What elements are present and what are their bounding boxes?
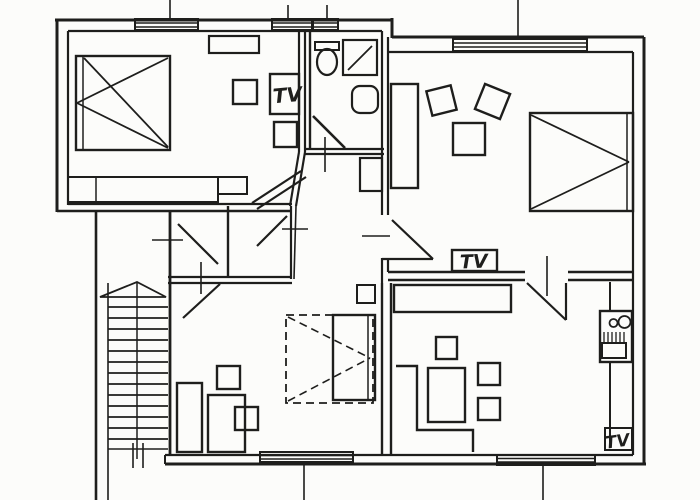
chair: [478, 398, 500, 420]
side-table: [453, 123, 485, 155]
foldout-bed-dash-line: [288, 358, 370, 401]
door-bedroom-leaf: [392, 220, 433, 259]
foldout-bed-dash-line: [288, 317, 370, 358]
bed-double: [76, 56, 170, 150]
sofa-bench: [68, 177, 218, 202]
chair: [436, 337, 457, 359]
tv-label-bedroom: TV: [460, 250, 490, 273]
stair-direction-arrow: [100, 282, 166, 297]
chair-tilted: [475, 84, 510, 119]
side-table: [217, 366, 240, 389]
tv-label-kitchen: TV: [604, 430, 633, 454]
floor-plan-page: TVTVTV: [0, 0, 700, 500]
chair: [478, 363, 500, 385]
wardrobe: [391, 84, 418, 188]
shower-diagonal: [348, 46, 372, 70]
chair-tilted: [426, 85, 456, 115]
bed-fold-line: [77, 103, 168, 148]
hall-cabinet: [360, 158, 382, 191]
wall-shelf: [209, 36, 259, 53]
bed-double: [530, 113, 633, 211]
desk: [208, 395, 245, 452]
bed-fold-line: [531, 115, 629, 162]
bench-extension: [218, 177, 247, 194]
stove-drawer: [602, 343, 626, 358]
corner-bench: [396, 366, 473, 452]
chair: [235, 407, 258, 430]
wardrobe: [177, 383, 202, 452]
bed-fold-line: [531, 162, 629, 209]
floor-plan-canvas: TVTVTV: [0, 0, 700, 500]
wall-closet-right-b: [294, 206, 296, 279]
side-table: [274, 122, 297, 147]
foldout-bed-dashed: [286, 315, 373, 403]
stove-burner: [619, 316, 631, 328]
bed-fold-line: [84, 58, 168, 147]
door-bath-leaf: [313, 116, 345, 148]
sink: [352, 86, 378, 113]
tv-label-living: TV: [272, 82, 305, 109]
side-table: [357, 285, 375, 303]
stove-burner: [610, 319, 618, 327]
sideboard: [394, 285, 511, 312]
door-closet-left-leaf: [178, 224, 218, 264]
door-closet-right-leaf: [257, 216, 287, 246]
side-table: [233, 80, 257, 104]
dining-table: [428, 368, 465, 422]
toilet-bowl: [317, 49, 337, 75]
window-frame: [260, 452, 353, 462]
window-frame: [453, 39, 587, 51]
